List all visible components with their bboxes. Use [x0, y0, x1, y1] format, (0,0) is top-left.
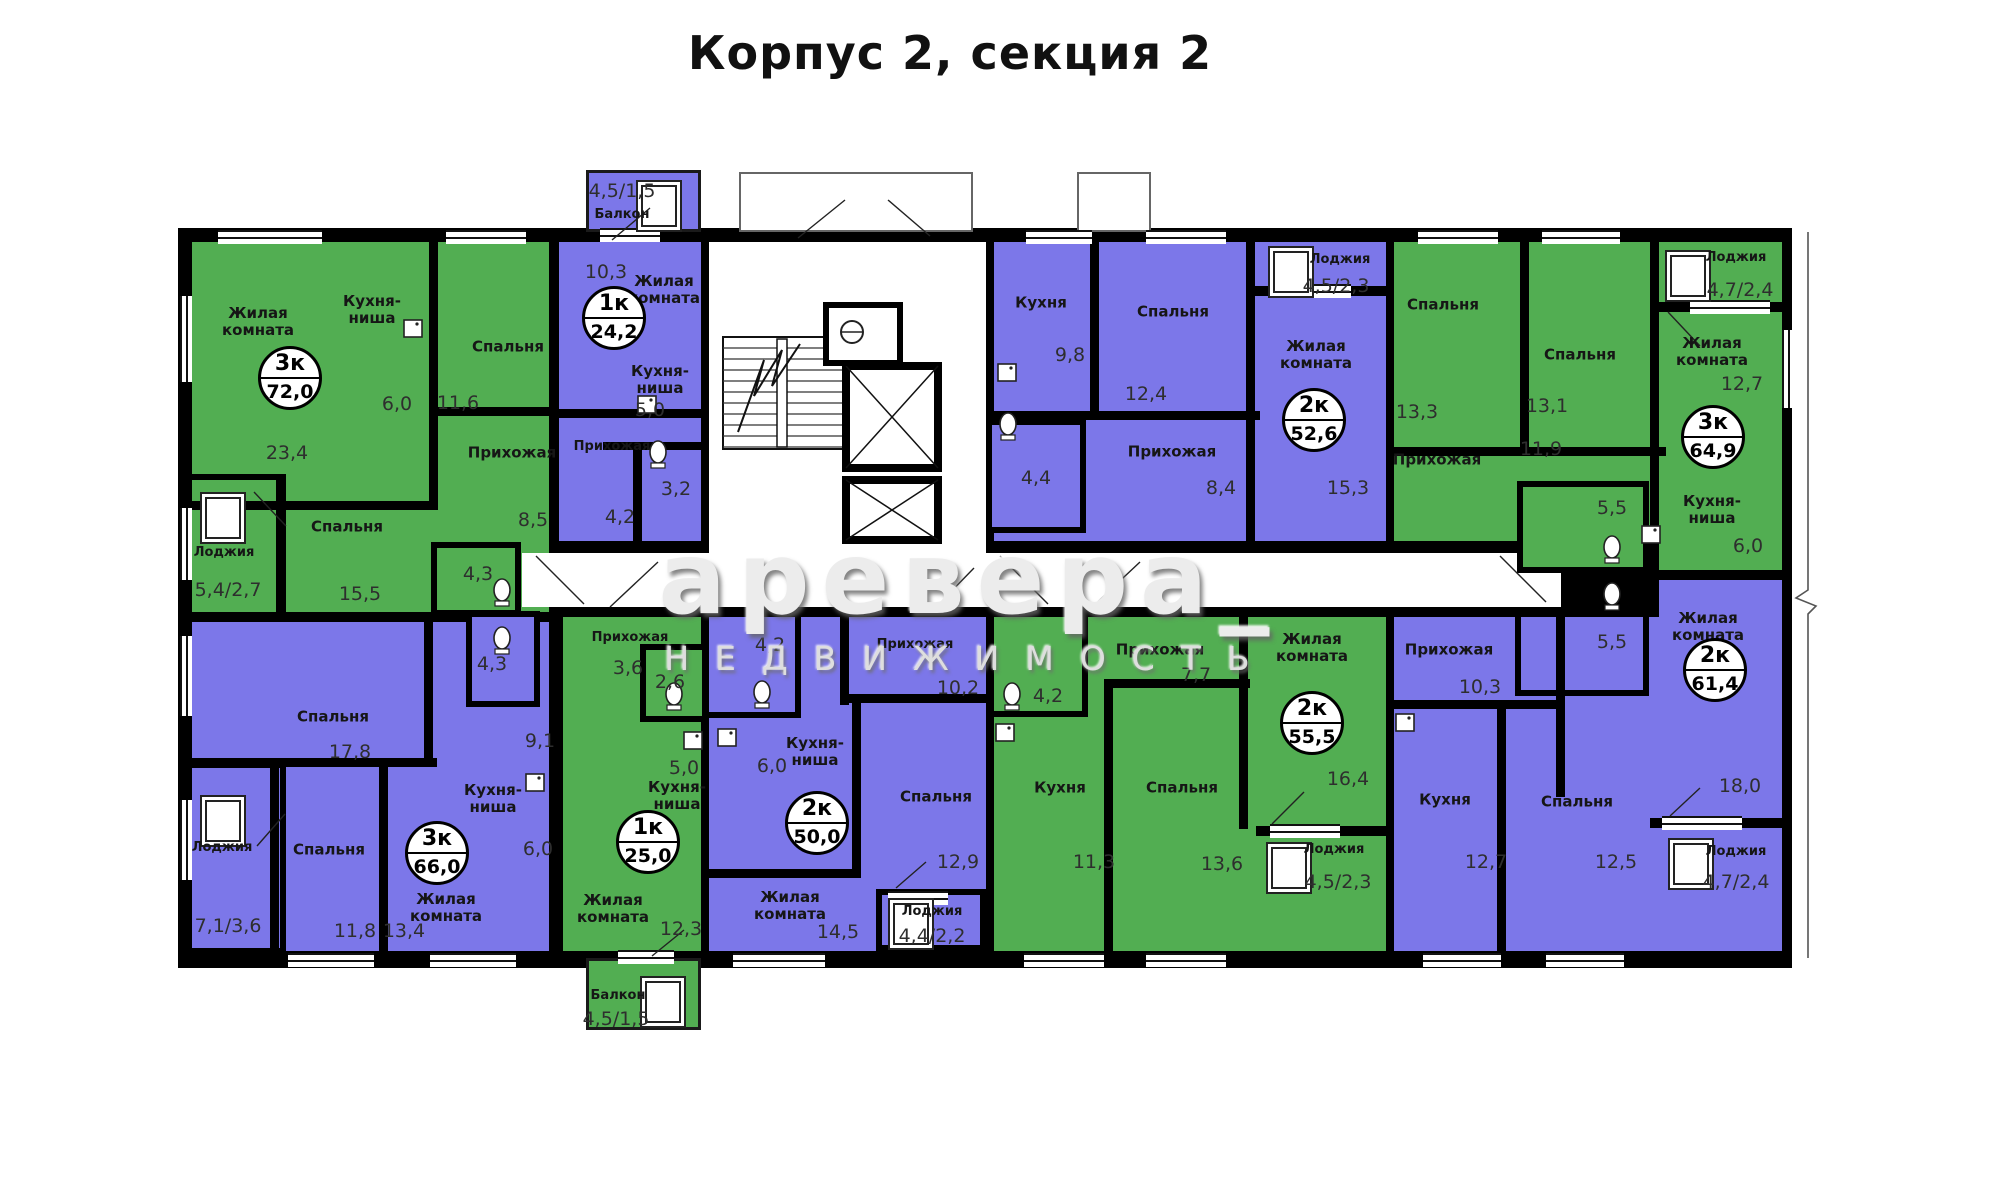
apt-2k-52-type: 2к	[1285, 393, 1343, 419]
apt-3k-64-badge[interactable]: 3к64,9	[1681, 405, 1745, 469]
floor-plan-page: Корпус 2, секция 2 Жилая комната23,4Кухн…	[0, 0, 2000, 1200]
apt-1k-25-type: 1к	[619, 815, 677, 841]
apt-3k-66-type: 3к	[408, 826, 466, 852]
apt-2k-50-badge[interactable]: 2к50,0	[785, 791, 849, 855]
apt-3k-64-total-area: 64,9	[1684, 438, 1742, 464]
apt-2k-61-type: 2к	[1686, 643, 1744, 669]
apt-1k-25-badge[interactable]: 1к25,0	[616, 810, 680, 874]
apt-3k-64-type: 3к	[1684, 410, 1742, 436]
apt-2k-61-total-area: 61,4	[1686, 671, 1744, 697]
apt-2k-55-type: 2к	[1283, 696, 1341, 722]
apt-1k-25-total-area: 25,0	[619, 843, 677, 869]
apt-1k-24-type: 1к	[585, 291, 643, 317]
apt-2k-52-badge[interactable]: 2к52,6	[1282, 388, 1346, 452]
apt-3k-66-badge[interactable]: 3к66,0	[405, 821, 469, 885]
apt-3k-72-total-area: 72,0	[261, 379, 319, 405]
apt-2k-55-total-area: 55,5	[1283, 724, 1341, 750]
apt-1k-24-badge[interactable]: 1к24,2	[582, 286, 646, 350]
apt-2k-55-badge[interactable]: 2к55,5	[1280, 691, 1344, 755]
apt-1k-24-total-area: 24,2	[585, 319, 643, 345]
apt-3k-66-total-area: 66,0	[408, 854, 466, 880]
apt-3k-72-badge[interactable]: 3к72,0	[258, 346, 322, 410]
apt-2k-50-type: 2к	[788, 796, 846, 822]
apt-2k-52-total-area: 52,6	[1285, 421, 1343, 447]
apt-3k-72-type: 3к	[261, 351, 319, 377]
apt-2k-50-total-area: 50,0	[788, 824, 846, 850]
apartment-badges-layer: 3к72,01к24,22к52,63к64,92к61,42к55,52к50…	[0, 0, 2000, 1200]
apt-2k-61-badge[interactable]: 2к61,4	[1683, 638, 1747, 702]
